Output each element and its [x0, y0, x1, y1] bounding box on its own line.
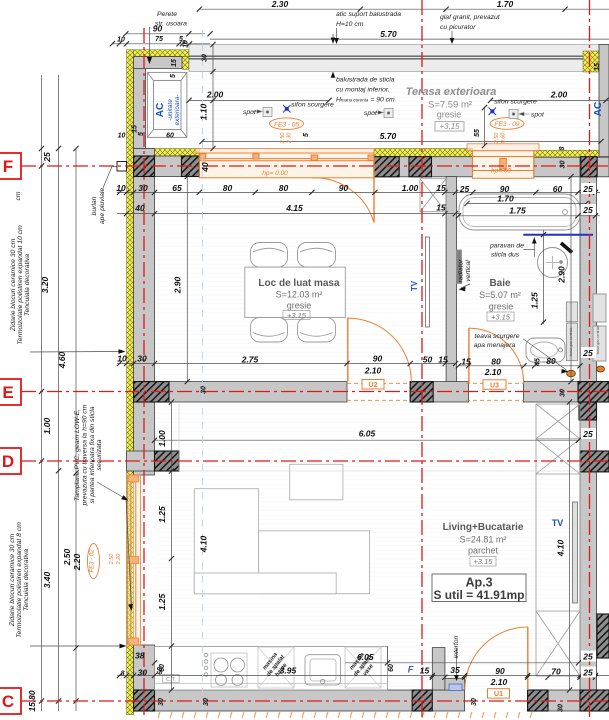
svg-text:burlan: burlan [91, 196, 98, 215]
svg-text:Termoizolatie polistiren expan: Termoizolatie polistiren expandat 10 cm [17, 225, 24, 345]
svg-text:1.70: 1.70 [497, 194, 514, 204]
svg-text:1.25: 1.25 [530, 292, 540, 309]
svg-text:5: 5 [138, 132, 145, 136]
svg-text:exterioara-: exterioara- [174, 94, 181, 126]
svg-text:cu picurator: cu picurator [440, 24, 476, 31]
svg-text:Tencuiala decorativa: Tencuiala decorativa [23, 549, 30, 611]
svg-text:F: F [408, 665, 414, 675]
svg-text:FE3 - 05: FE3 - 05 [274, 121, 299, 128]
svg-text:interfon: interfon [453, 635, 460, 658]
svg-text:30: 30 [137, 354, 147, 364]
svg-text:cu montaj inferior,: cu montaj inferior, [336, 87, 390, 94]
svg-text:C.T.: C.T. [166, 677, 176, 683]
svg-text:1.00: 1.00 [402, 183, 419, 193]
svg-text:30: 30 [201, 386, 208, 394]
svg-text:50: 50 [423, 355, 433, 365]
svg-text:1.25: 1.25 [157, 506, 167, 523]
svg-text:35: 35 [450, 665, 460, 675]
svg-text:30: 30 [138, 183, 148, 193]
svg-text:10: 10 [117, 37, 125, 44]
svg-text:30: 30 [560, 389, 567, 397]
svg-text:30: 30 [471, 698, 478, 706]
svg-text:Hmana curenta = 90 cm: Hmana curenta = 90 cm [336, 97, 395, 104]
svg-text:Living+Bucatarie: Living+Bucatarie [443, 522, 524, 533]
svg-text:str. usoara: str. usoara [155, 21, 187, 28]
svg-text:2.20: 2.20 [72, 553, 82, 571]
svg-text:30: 30 [138, 668, 148, 678]
svg-text:2.30: 2.30 [287, 132, 293, 145]
svg-text:80: 80 [546, 356, 556, 366]
svg-text:sticla dus: sticla dus [491, 252, 520, 259]
svg-text:Tamplarie PVC, geam LOW-E,: Tamplarie PVC, geam LOW-E, [74, 409, 81, 501]
svg-text:radiator: radiator [458, 259, 465, 283]
svg-text:2.00: 2.00 [550, 90, 568, 100]
svg-text:C: C [2, 692, 14, 711]
svg-text:15: 15 [438, 355, 448, 365]
svg-text:90: 90 [339, 183, 349, 193]
svg-text:60: 60 [553, 184, 563, 194]
svg-text:Termoizolatie polistiren expan: Termoizolatie polistiren expandat 8 cm [16, 522, 23, 638]
svg-text:3.40: 3.40 [42, 571, 52, 588]
svg-text:55: 55 [474, 129, 481, 137]
svg-text:gresie: gresie [437, 110, 462, 120]
svg-text:15.80: 15.80 [27, 690, 37, 712]
svg-text:2.10: 2.10 [364, 366, 382, 376]
svg-text:D: D [2, 452, 14, 471]
svg-text:sifon scurgere: sifon scurgere [494, 99, 537, 106]
svg-text:Tencuiala decorativa: Tencuiala decorativa [24, 254, 31, 316]
svg-text:paravan de: paravan de [489, 243, 524, 250]
svg-text:15: 15 [420, 666, 430, 676]
svg-text:S=12.03 m²: S=12.03 m² [276, 290, 323, 300]
svg-text:hp= 0.00: hp= 0.00 [262, 170, 288, 177]
svg-text:2.50: 2.50 [280, 132, 286, 145]
svg-text:15: 15 [171, 59, 178, 67]
svg-text:80: 80 [279, 183, 289, 193]
svg-text:teava gaz-centrala: teava gaz-centrala [569, 328, 573, 357]
svg-text:4.10: 4.10 [556, 539, 566, 557]
svg-text:60: 60 [166, 133, 174, 140]
svg-text:teava scurgere: teava scurgere [475, 333, 520, 340]
svg-text:15: 15 [132, 125, 139, 133]
svg-text:si partea inferioara fixa din: si partea inferioara fixa din sticla [89, 406, 96, 503]
svg-text:0.60: 0.60 [501, 132, 507, 144]
svg-text:hp= 60: hp= 60 [491, 167, 511, 174]
svg-text:8: 8 [121, 671, 125, 678]
svg-text:15: 15 [594, 63, 601, 71]
svg-text:30: 30 [202, 54, 209, 62]
svg-text:2.50: 2.50 [62, 548, 72, 566]
svg-text:2.50: 2.50 [109, 553, 115, 566]
svg-text:Zidarie blocuri ceramice 30 cm: Zidarie blocuri ceramice 30 cm [10, 238, 17, 332]
svg-text:10: 10 [116, 183, 126, 193]
svg-text:U2: U2 [369, 382, 378, 389]
svg-text:+3.15: +3.15 [287, 311, 307, 320]
svg-text:4.10: 4.10 [199, 535, 209, 553]
svg-text:25: 25 [582, 205, 593, 215]
svg-text:5.70: 5.70 [380, 131, 397, 141]
svg-text:F: F [3, 157, 13, 176]
svg-text:1.75: 1.75 [509, 206, 526, 216]
svg-text:FE3 - 09: FE3 - 09 [495, 121, 520, 128]
svg-text:AC: AC [593, 102, 604, 116]
svg-text:30: 30 [203, 698, 210, 706]
svg-text:15: 15 [436, 203, 446, 213]
svg-text:2.90: 2.90 [557, 266, 567, 284]
svg-text:25: 25 [582, 668, 593, 678]
svg-text:90: 90 [500, 184, 510, 194]
svg-text:10: 10 [118, 133, 126, 140]
svg-text:65: 65 [172, 183, 182, 193]
svg-text:U1: U1 [494, 691, 503, 698]
svg-text:75: 75 [155, 36, 163, 43]
svg-text:Baie: Baie [489, 278, 511, 289]
svg-text:2.20: 2.20 [116, 553, 122, 566]
svg-text:teava gaz-centrala: teava gaz-centrala [596, 326, 600, 355]
svg-text:38: 38 [135, 651, 145, 661]
svg-text:70: 70 [551, 667, 561, 677]
svg-text:80: 80 [491, 357, 501, 367]
svg-text:25: 25 [459, 184, 470, 194]
svg-text:8: 8 [559, 146, 566, 150]
svg-text:1.70: 1.70 [497, 0, 514, 9]
svg-text:TV: TV [552, 518, 564, 528]
svg-text:5.70: 5.70 [380, 29, 397, 39]
svg-text:parchet: parchet [468, 546, 499, 556]
svg-text:+3.15: +3.15 [474, 557, 494, 566]
svg-text:apa menajera: apa menajera [474, 342, 516, 349]
svg-text:5: 5 [170, 74, 177, 78]
svg-text:5: 5 [303, 133, 310, 137]
svg-text:Terasa exterioara: Terasa exterioara [406, 86, 497, 98]
svg-text:2.30: 2.30 [271, 0, 289, 9]
svg-text:25: 25 [582, 348, 593, 358]
svg-text:Zidarie blocuri ceramice 30 cm: Zidarie blocuri ceramice 30 cm [9, 533, 16, 627]
svg-text:gresie: gresie [287, 301, 312, 311]
svg-text:ape pluviale: ape pluviale [99, 188, 106, 224]
svg-text:25: 25 [42, 152, 52, 163]
svg-text:S util = 41.91mp: S util = 41.91mp [433, 588, 524, 602]
svg-text:1.25: 1.25 [157, 593, 167, 610]
svg-text:spot: spot [243, 109, 257, 116]
svg-text:2.00: 2.00 [206, 90, 224, 100]
svg-text:atic suport balustrada: atic suport balustrada [336, 11, 401, 18]
svg-text:E: E [2, 383, 13, 402]
svg-text:45: 45 [535, 358, 542, 367]
svg-text:sifon scurgere: sifon scurgere [291, 102, 334, 109]
svg-text:AC: AC [155, 103, 166, 117]
svg-text:4.15: 4.15 [285, 203, 303, 213]
svg-text:25: 25 [582, 652, 593, 662]
svg-text:4.60: 4.60 [57, 351, 67, 369]
svg-text:cm: cm [15, 191, 22, 200]
svg-text:gresie: gresie [489, 302, 514, 312]
svg-text:S=5.07 m²: S=5.07 m² [479, 290, 521, 300]
svg-text:2.50: 2.50 [494, 132, 500, 145]
svg-text:spot: spot [531, 112, 545, 119]
svg-text:25: 25 [582, 184, 593, 194]
svg-text:80: 80 [223, 183, 233, 193]
svg-text:25: 25 [582, 429, 593, 439]
svg-text:glaf granit, prevazut: glaf granit, prevazut [440, 14, 501, 21]
svg-text:90: 90 [495, 666, 505, 676]
svg-text:2.75: 2.75 [241, 355, 259, 365]
svg-text:1.00: 1.00 [157, 430, 167, 447]
svg-text:spot: spot [364, 110, 378, 117]
svg-text:prevazuta cu traversa la h=90: prevazuta cu traversa la h=90 cm [82, 404, 89, 506]
svg-text:1.10: 1.10 [199, 103, 209, 120]
svg-text:FE3 - 02: FE3 - 02 [90, 549, 96, 573]
svg-text:15: 15 [461, 357, 471, 367]
svg-text:S=24.81 m²: S=24.81 m² [460, 535, 507, 545]
svg-text:securizata: securizata [96, 439, 103, 470]
svg-text:90: 90 [373, 354, 383, 364]
svg-text:+3.15: +3.15 [439, 122, 460, 131]
svg-text:H=10 cm: H=10 cm [336, 21, 364, 28]
svg-text:TV: TV [410, 280, 419, 291]
svg-text:3.20: 3.20 [40, 276, 50, 293]
svg-text:+3.15: +3.15 [491, 312, 511, 321]
svg-text:40: 40 [134, 203, 145, 213]
svg-text:10: 10 [183, 40, 190, 48]
svg-text:2.10: 2.10 [484, 367, 502, 377]
svg-text:30: 30 [560, 161, 567, 169]
svg-text:60: 60 [157, 667, 164, 675]
svg-text:1.00: 1.00 [42, 417, 52, 434]
svg-text:2.90: 2.90 [173, 276, 183, 294]
svg-text:30: 30 [558, 704, 565, 712]
svg-text:40: 40 [200, 162, 210, 173]
svg-text:-unitate: -unitate [167, 99, 174, 121]
svg-text:Loc de luat masa: Loc de luat masa [258, 278, 340, 289]
svg-text:10: 10 [117, 354, 127, 364]
svg-text:15: 15 [436, 183, 446, 193]
svg-text:vertical: vertical [465, 260, 472, 282]
svg-text:30: 30 [158, 698, 165, 706]
svg-text:60: 60 [388, 664, 395, 672]
svg-text:Perete: Perete [157, 11, 177, 18]
svg-text:balustrada de sticla: balustrada de sticla [336, 77, 395, 84]
svg-text:2.10: 2.10 [490, 677, 508, 687]
svg-text:6.05: 6.05 [359, 429, 376, 439]
svg-text:U3: U3 [490, 382, 499, 389]
